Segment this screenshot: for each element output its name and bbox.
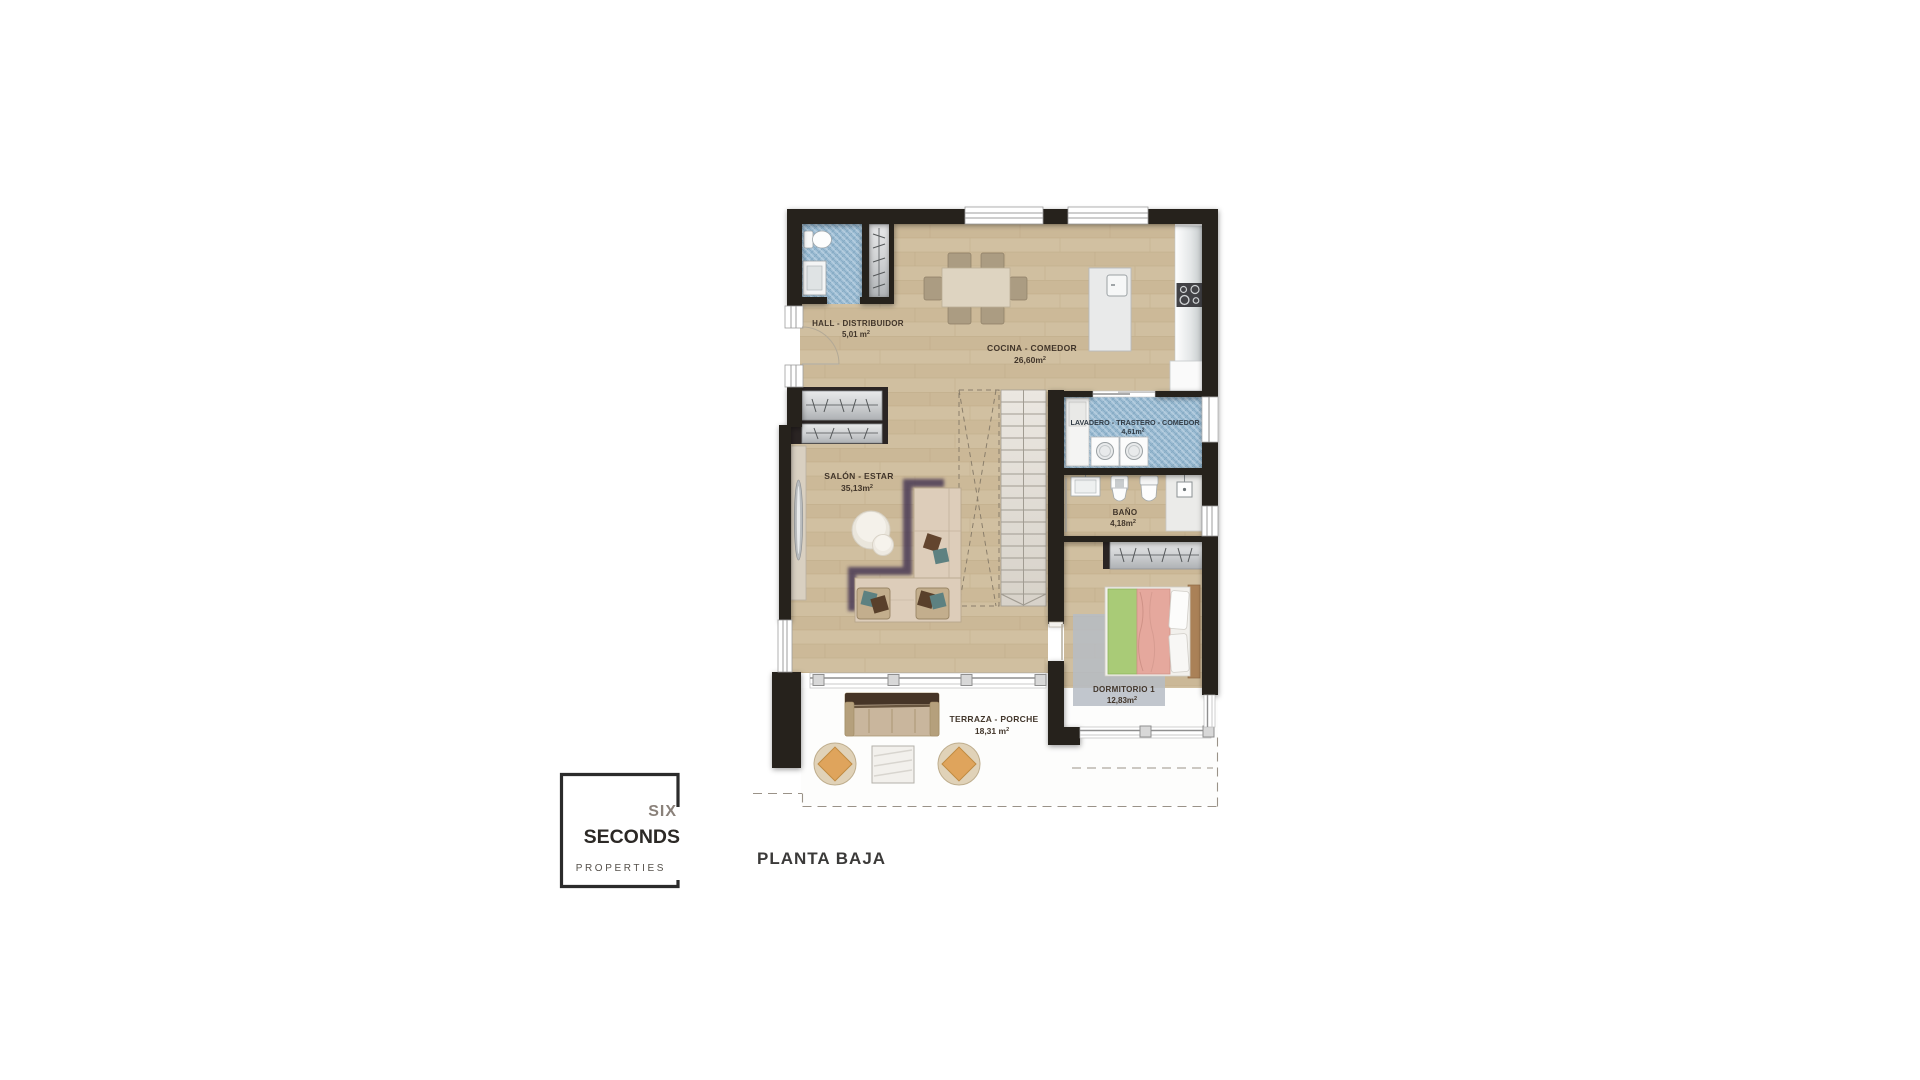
svg-text:TERRAZA - PORCHE: TERRAZA - PORCHE (949, 714, 1038, 724)
svg-text:BAÑO: BAÑO (1113, 508, 1138, 517)
svg-text:4,61m2: 4,61m2 (1121, 427, 1144, 436)
svg-text:HALL - DISTRIBUIDOR: HALL - DISTRIBUIDOR (812, 319, 904, 328)
svg-text:26,60m2: 26,60m2 (1014, 355, 1046, 365)
svg-text:18,31 m2: 18,31 m2 (975, 726, 1009, 736)
svg-text:SECONDS: SECONDS (584, 826, 680, 848)
svg-text:SIX: SIX (648, 803, 677, 820)
svg-text:5,01 m2: 5,01 m2 (842, 330, 870, 339)
svg-text:LAVADERO - TRASTERO - COMEDOR: LAVADERO - TRASTERO - COMEDOR (1070, 418, 1200, 427)
svg-text:COCINA - COMEDOR: COCINA - COMEDOR (987, 343, 1077, 353)
svg-text:DORMITORIO 1: DORMITORIO 1 (1093, 685, 1155, 694)
svg-text:35,13m2: 35,13m2 (841, 483, 873, 493)
svg-text:4,18m2: 4,18m2 (1110, 519, 1136, 528)
svg-text:12,83m2: 12,83m2 (1107, 696, 1137, 705)
svg-text:SALÓN - ESTAR: SALÓN - ESTAR (824, 470, 893, 481)
svg-text:PROPERTIES: PROPERTIES (576, 863, 666, 874)
svg-text:PLANTA BAJA: PLANTA BAJA (757, 849, 886, 868)
